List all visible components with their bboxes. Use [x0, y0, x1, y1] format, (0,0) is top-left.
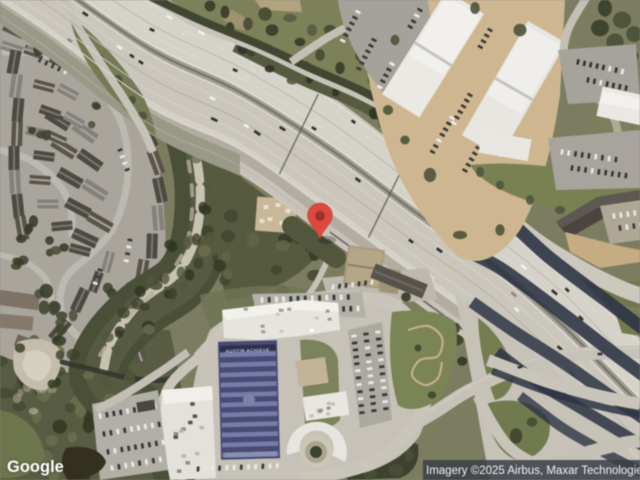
svg-text:Imagery ©2025 Airbus, Maxar Te: Imagery ©2025 Airbus, Maxar Technologies	[426, 465, 640, 477]
svg-text:Google: Google	[7, 458, 64, 476]
